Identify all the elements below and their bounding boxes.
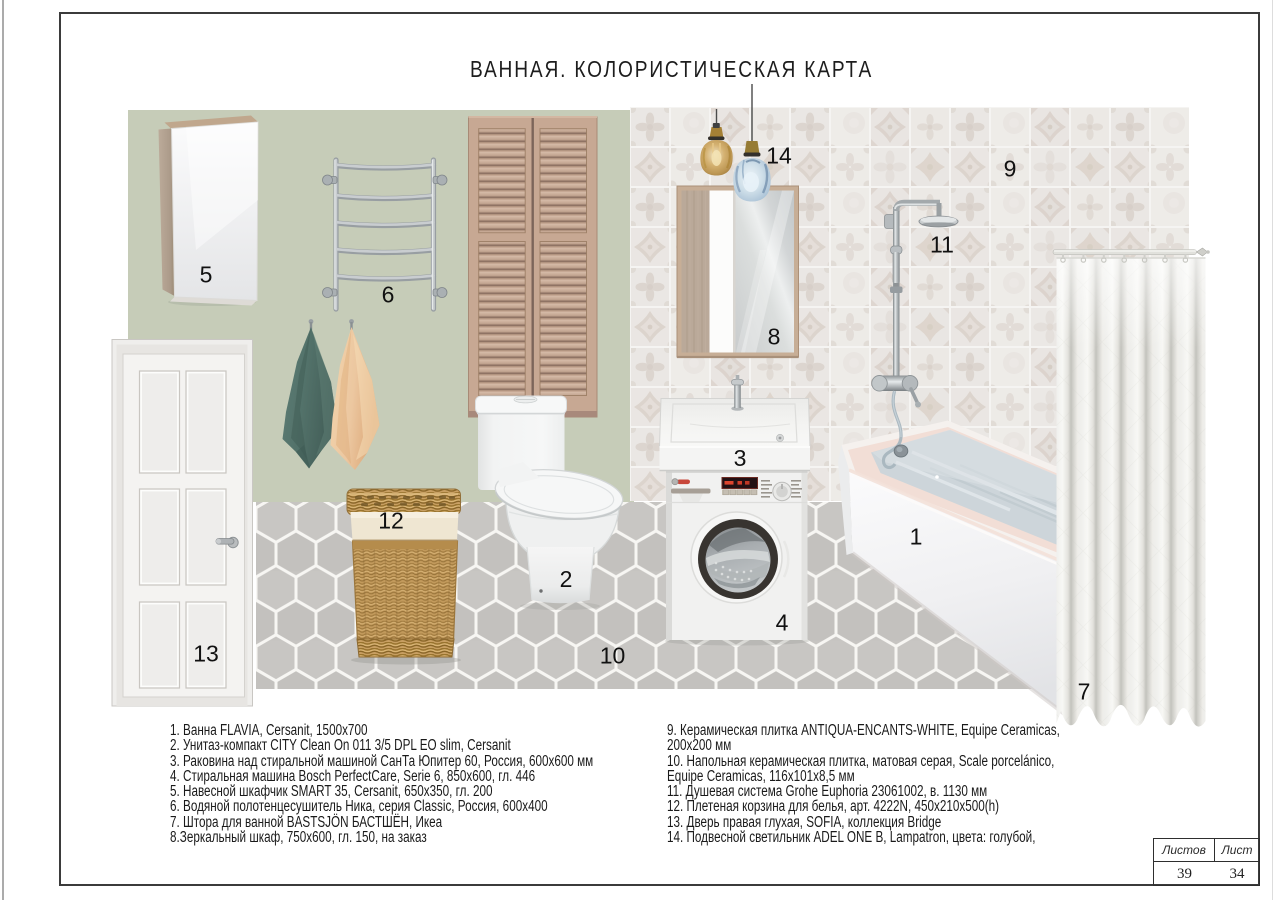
svg-text:4: 4 xyxy=(776,610,789,636)
svg-text:8: 8 xyxy=(768,324,781,350)
svg-text:9: 9 xyxy=(1004,156,1017,182)
svg-text:3: 3 xyxy=(734,445,747,471)
svg-text:6: 6 xyxy=(382,282,395,308)
svg-text:11: 11 xyxy=(930,232,954,258)
svg-text:14: 14 xyxy=(766,143,792,169)
svg-text:1: 1 xyxy=(910,524,923,550)
svg-text:12: 12 xyxy=(378,508,404,534)
svg-text:5: 5 xyxy=(200,262,213,288)
svg-text:13: 13 xyxy=(193,641,219,667)
svg-text:2: 2 xyxy=(560,566,573,592)
svg-text:10: 10 xyxy=(600,643,626,669)
svg-text:7: 7 xyxy=(1078,679,1091,705)
